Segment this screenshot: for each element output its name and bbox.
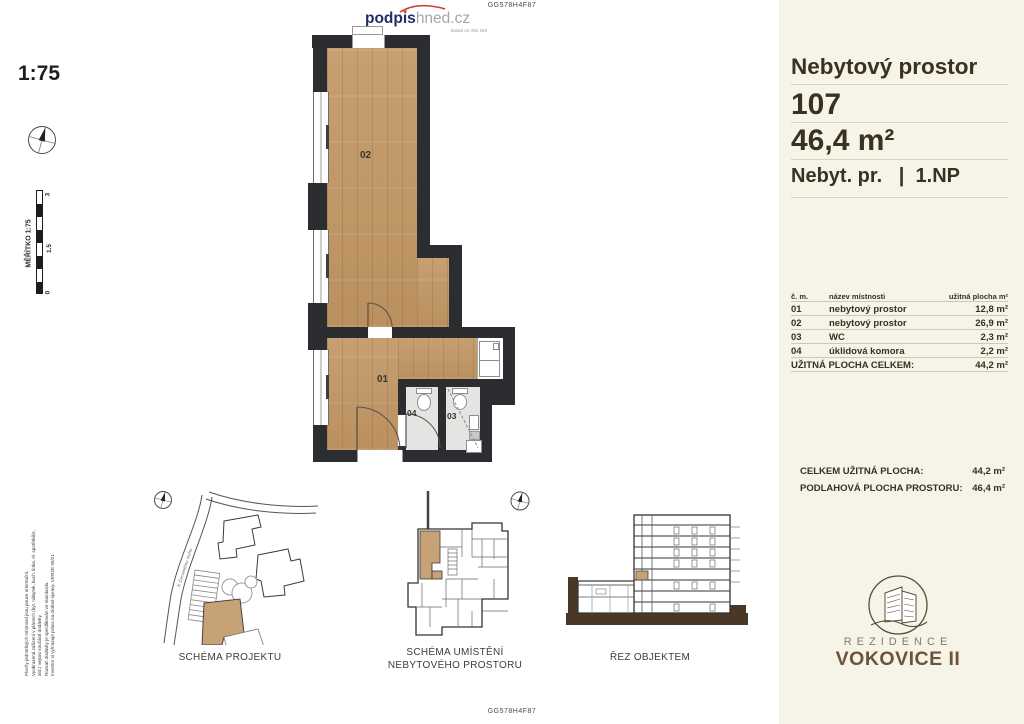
room-01-floor-ext (398, 338, 477, 379)
total-value: 44,2 m² (938, 360, 1008, 371)
room-area: 12,8 m² (938, 304, 1008, 315)
room-number: 01 (791, 304, 829, 315)
radiator-mark (326, 254, 329, 278)
room-01-floor (327, 338, 398, 450)
wall-segment (313, 450, 357, 462)
room-name: WC (829, 332, 938, 343)
table-total-row: UŽITNÁ PLOCHA CELKEM: 44,2 m² (791, 358, 1008, 372)
logo-swoosh-icon (398, 3, 448, 15)
north-compass-icon (24, 122, 60, 158)
disclaimer-line: Rozsah dodávky je specifikován ve standa… (44, 494, 51, 676)
radiator-mark (326, 375, 329, 399)
logo-tagline: based on ING OM (451, 28, 487, 33)
unit-area: 46,4 m² (791, 124, 1008, 158)
col-header-name: název místnosti (829, 292, 938, 301)
door-opening-top (352, 35, 385, 48)
disclaimer-line: Plochy jednotlivých místností jsou pouze… (24, 494, 31, 676)
kitchenette-sink (493, 343, 499, 350)
room-name: nebytový prostor (829, 304, 938, 315)
entrance-opening (357, 450, 403, 462)
location-caption-line2: NEBYTOVÉHO PROSTORU (380, 659, 530, 672)
document-code-top: GG578H4F87 (452, 2, 572, 9)
summary-value: 46,4 m² (972, 483, 1005, 494)
summary-label: PODLAHOVÁ PLOCHA PROSTORU: (800, 483, 963, 494)
scale-bar (36, 190, 43, 294)
site-caption: SCHÉMA PROJEKTU (150, 652, 310, 663)
wall-segment (308, 183, 327, 230)
table-row: 01 nebytový prostor 12,8 m² (791, 302, 1008, 316)
wall-segment (417, 35, 430, 245)
kitchenette-divider (479, 360, 500, 361)
wall-segment (392, 327, 515, 338)
wall-segment (480, 385, 515, 405)
col-header-area: užitná plocha m² (938, 292, 1008, 301)
disclaimer-line: atd.) nejsou součástí dodávky. (37, 494, 44, 676)
counter (469, 431, 480, 440)
street-label: K Červenému vrchu (175, 547, 193, 587)
shaft (466, 440, 482, 453)
summary-label: CELKEM UŽITNÁ PLOCHA: (800, 466, 924, 477)
table-row: 04 úklidová komora 2,2 m² (791, 344, 1008, 358)
summary-row: PODLAHOVÁ PLOCHA PROSTORU: 46,4 m² (800, 483, 1005, 494)
floor-plan-sheet: podpishned.cz based on ING OM GG578H4F87… (0, 0, 1024, 724)
unit-title: Nebytový prostor (791, 54, 1008, 80)
scale-tick-max: 3 (44, 193, 51, 197)
north-compass-icon (153, 490, 174, 511)
rezidence-vokovice-logo-icon (858, 562, 938, 642)
toilet-icon (417, 394, 431, 411)
room-name: úklidová komora (829, 346, 938, 357)
total-label: UŽITNÁ PLOCHA CELKEM: (791, 360, 938, 371)
scale-tick-min: 0 (44, 291, 51, 295)
document-code-bottom: GG578H4F87 (452, 708, 572, 715)
room-name: nebytový prostor (829, 318, 938, 329)
room-number: 02 (791, 318, 829, 329)
north-compass-icon (509, 490, 531, 512)
room-label-02: 02 (360, 150, 371, 161)
scale-ratio-label: 1:75 (18, 62, 60, 86)
toilet-icon (453, 394, 467, 410)
unit-number: 107 (791, 88, 1008, 122)
disclaimer-line: Vyobrazená zařízení v plánech (byt. náby… (31, 494, 38, 676)
disclaimer-text: Plochy jednotlivých místností jsou pouze… (24, 494, 57, 676)
divider (791, 197, 1008, 198)
room-label-01: 01 (377, 374, 388, 385)
divider (791, 122, 1008, 123)
podpishned-logo: podpishned.cz based on ING OM (365, 6, 495, 34)
room-area: 26,9 m² (938, 318, 1008, 329)
col-header-number: č. m. (791, 292, 829, 301)
room-label-04: 04 (407, 408, 416, 418)
wall-segment (417, 245, 462, 258)
table-row: 03 WC 2,3 m² (791, 330, 1008, 344)
room-02-floor-ext (417, 258, 449, 327)
wall-segment (313, 35, 327, 92)
room-number: 04 (791, 346, 829, 357)
summary-row: CELKEM UŽITNÁ PLOCHA: 44,2 m² (800, 466, 1005, 477)
sink-icon (469, 415, 479, 430)
section-caption: ŘEZ OBJEKTEM (585, 652, 715, 663)
wall-segment (449, 258, 462, 337)
wall-segment (398, 387, 406, 415)
table-row: 02 nebytový prostor 26,9 m² (791, 316, 1008, 330)
summary-value: 44,2 m² (972, 466, 1005, 477)
room-label-03: 03 (447, 411, 456, 421)
room-area: 2,2 m² (938, 346, 1008, 357)
scale-bar-label: MĚŘÍTKO 1:75 (26, 209, 33, 279)
radiator-mark (326, 125, 329, 149)
scale-tick-mid: 1.5 (46, 244, 53, 253)
section-drawing (562, 505, 752, 637)
brand-line-rezidence: REZIDENCE (836, 636, 960, 648)
table-header-row: č. m. název místnosti užitná plocha m² (791, 289, 1008, 302)
divider (791, 84, 1008, 85)
divider (791, 159, 1008, 160)
location-plan-drawing (382, 487, 532, 645)
disclaimer-line: Investor si vyhrazuje právo na drobné úp… (50, 494, 57, 676)
room-02-floor (327, 48, 417, 327)
room-area: 2,3 m² (938, 332, 1008, 343)
unit-type-floor: Nebyt. pr. | 1.NP (791, 165, 1008, 188)
brand-line-vokovice: VOKOVICE II (826, 648, 970, 671)
wall-segment (313, 327, 368, 338)
site-plan-drawing: K Červenému vrchu (138, 487, 318, 645)
entry-stoop (352, 26, 383, 35)
wall-segment (438, 387, 446, 450)
location-caption-line1: SCHÉMA UMÍSTĚNÍ (380, 646, 530, 659)
room-number: 03 (791, 332, 829, 343)
